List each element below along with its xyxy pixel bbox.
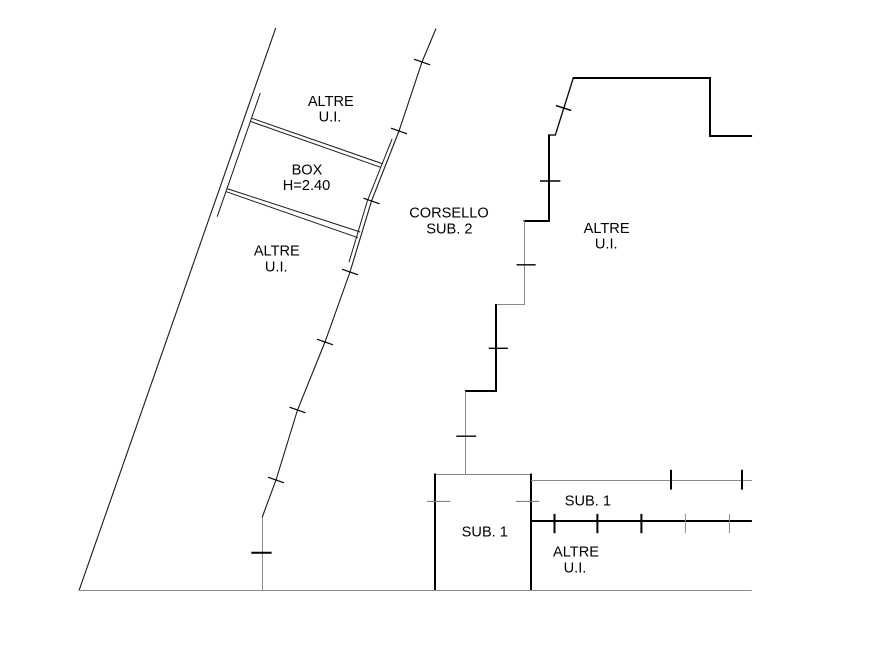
svg-text:U.I.: U.I. [595,237,618,253]
svg-text:U.I.: U.I. [265,260,288,276]
svg-text:ALTRE: ALTRE [254,244,300,260]
svg-text:SUB. 1: SUB. 1 [462,525,508,541]
svg-text:ALTRE: ALTRE [553,545,599,561]
svg-text:U.I.: U.I. [564,560,587,576]
svg-text:U.I.: U.I. [319,110,342,126]
svg-text:ALTRE: ALTRE [584,221,630,237]
svg-text:H=2.40: H=2.40 [283,178,330,194]
svg-text:SUB. 1: SUB. 1 [565,493,611,509]
svg-text:ALTRE: ALTRE [308,94,354,110]
svg-text:BOX: BOX [292,163,323,179]
svg-text:CORSELLO: CORSELLO [409,206,488,222]
svg-text:SUB. 2: SUB. 2 [426,222,472,238]
